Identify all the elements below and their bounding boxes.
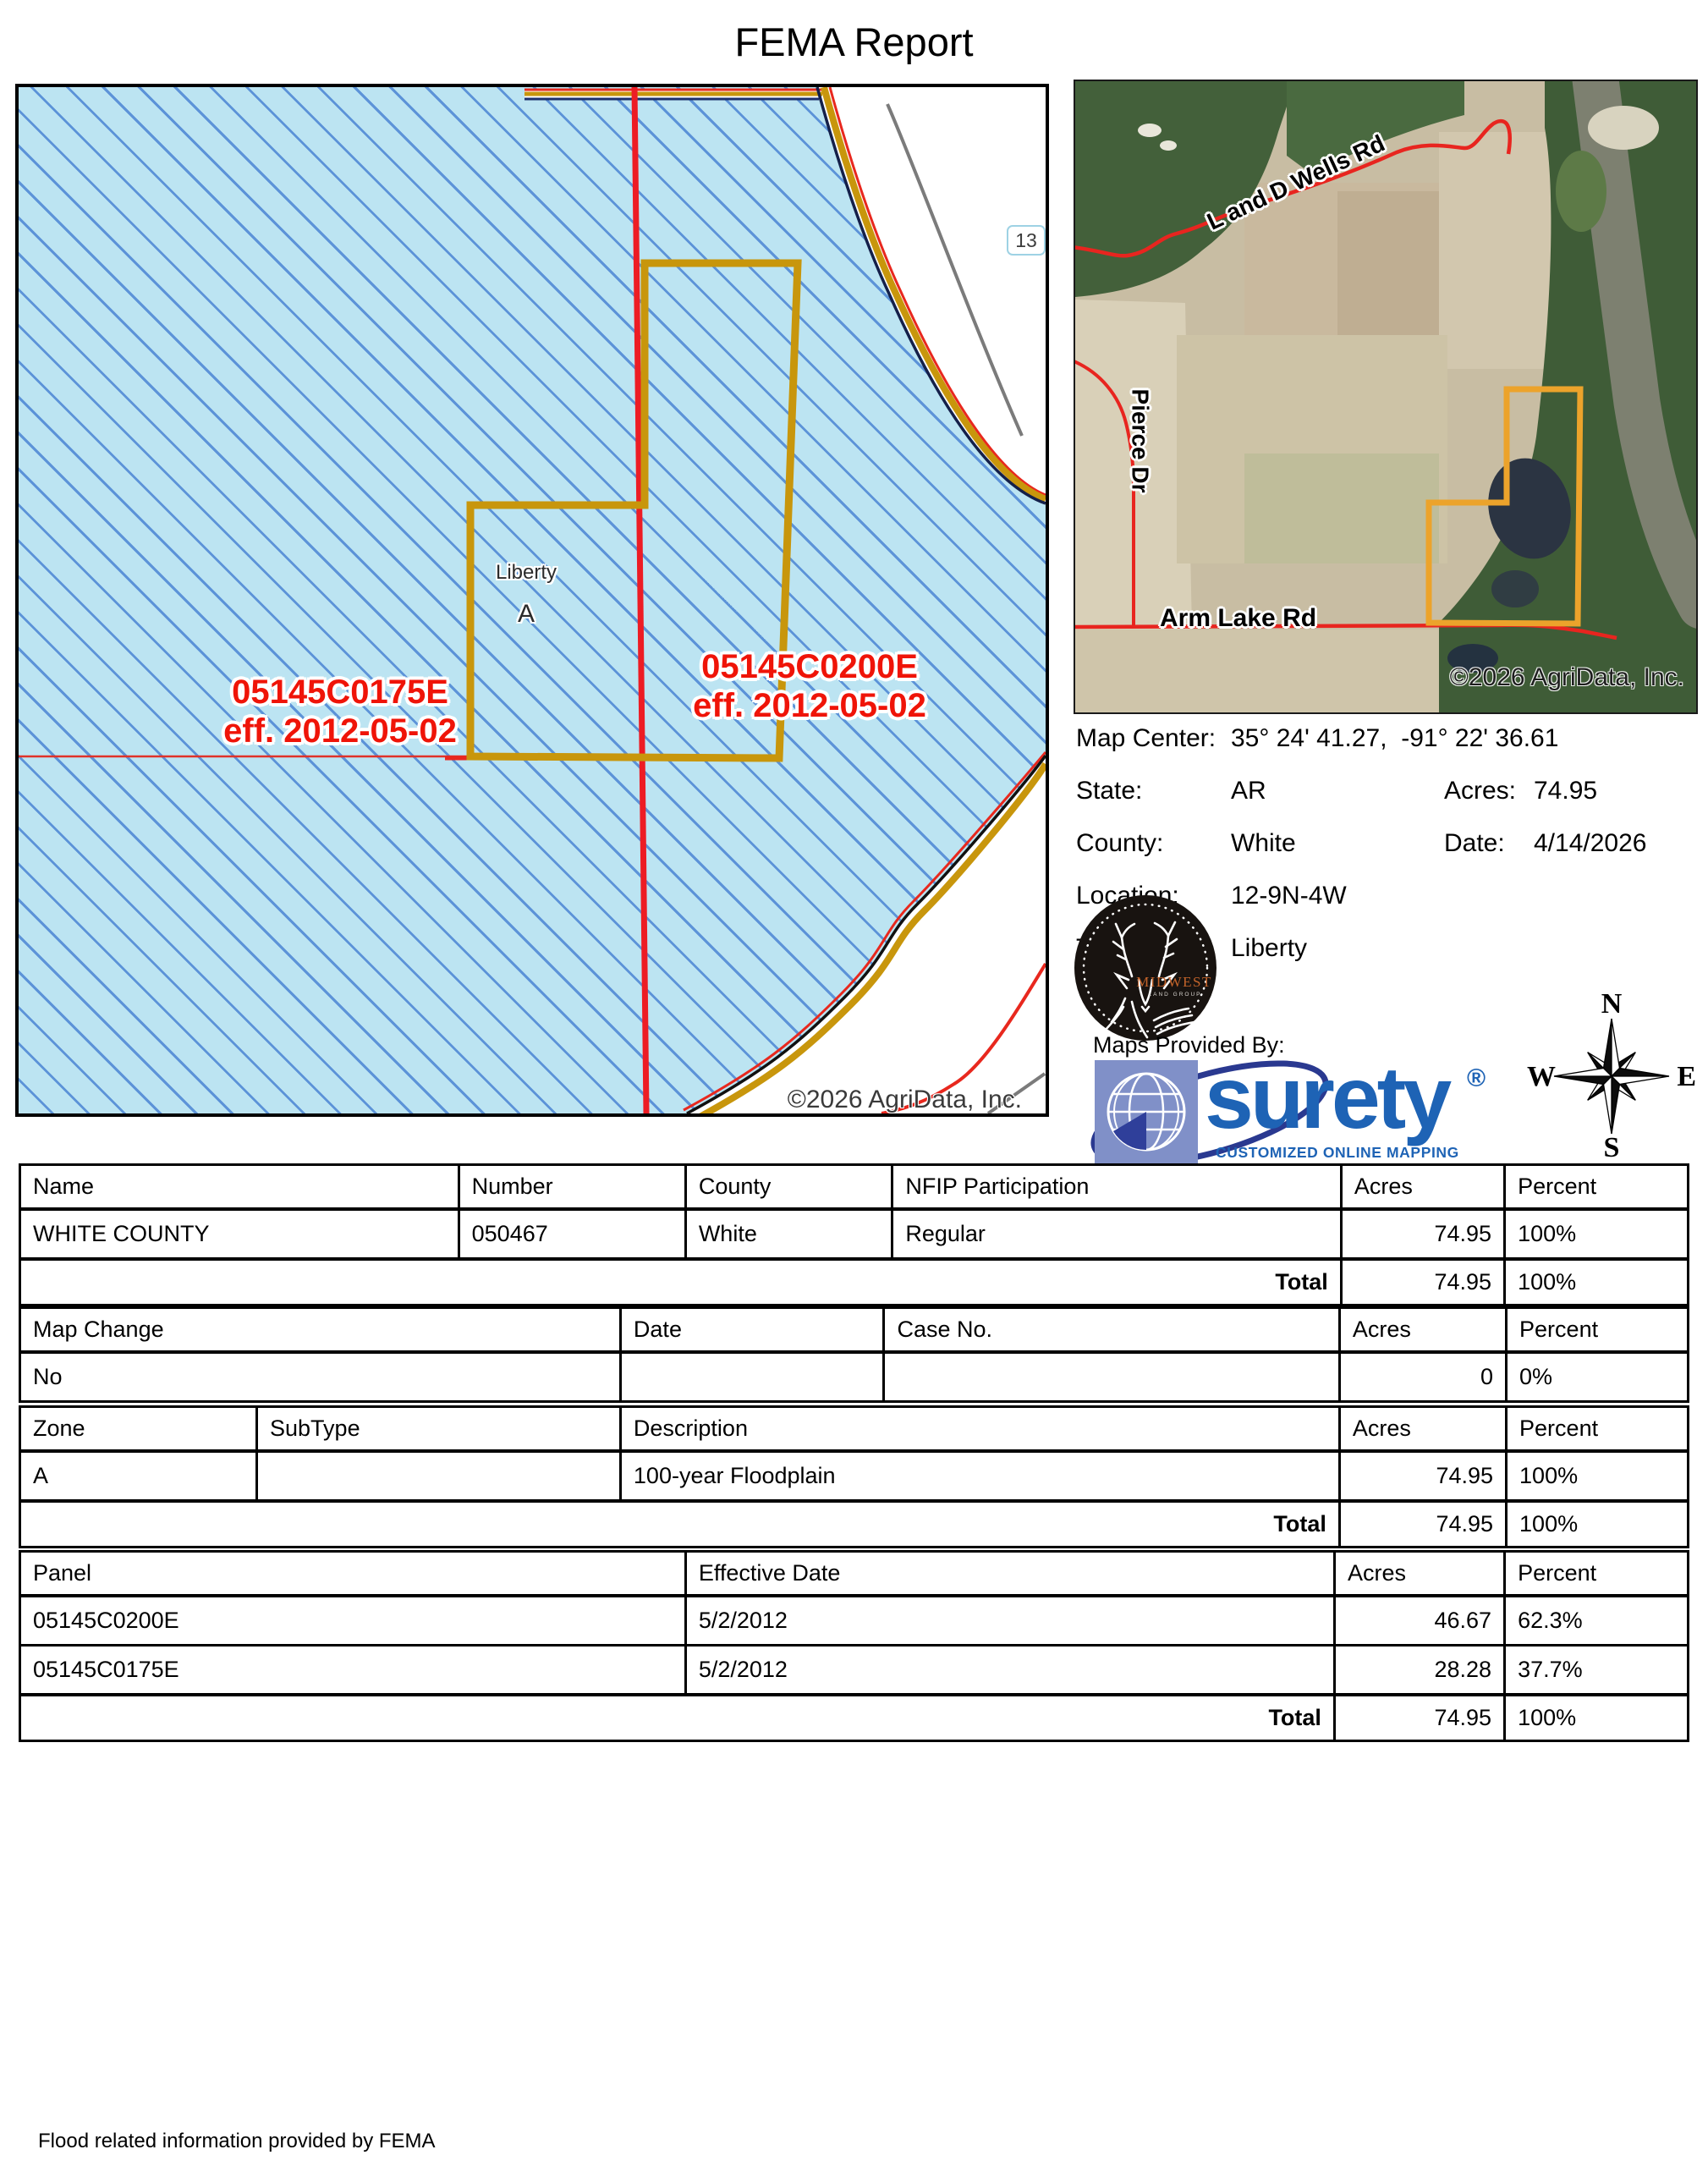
table-row: 05145C0200E 5/2/2012 46.67 62.3% [20,1596,1689,1646]
pond-2 [1491,570,1539,607]
fema-panel-label-right: 05145C0200E eff. 2012-05-02 [640,647,979,725]
cell-subtype [257,1451,621,1501]
col-effective-date: Effective Date [685,1552,1334,1597]
map-change-table: Map Change Date Case No. Acres Percent N… [19,1306,1689,1403]
total-row: Total 74.95 100% [20,1695,1689,1741]
col-name: Name [20,1165,459,1210]
aerial-photo-map: L and D Wells Rd Pierce Dr Arm Lake Rd ©… [1074,80,1698,714]
map-change-header: Map Change Date Case No. Acres Percent [20,1308,1689,1353]
globe-grid [1095,1060,1198,1163]
col-acres: Acres [1339,1308,1506,1353]
flood-zone-label: A [492,600,560,629]
footer-note: Flood related information provided by FE… [38,2130,436,2153]
col-subtype: SubType [257,1407,621,1452]
cell-acres: 28.28 [1334,1646,1504,1696]
zone-table: Zone SubType Description Acres Percent A… [19,1405,1689,1548]
surety-wordmark: surety [1205,1056,1448,1141]
non-floodplain-area-bottom [687,756,1046,1113]
field-3 [1439,132,1562,369]
panel-divider-red-line [634,87,646,1113]
total-percent: 100% [1505,1695,1689,1741]
cell-effective-date: 5/2/2012 [685,1646,1334,1696]
total-acres: 74.95 [1341,1259,1504,1306]
total-label: Total [20,1501,1340,1548]
location-value: 12-9N-4W [1231,882,1347,910]
logo-oval [1074,895,1216,1041]
road-label-arm-lake: Arm Lake Rd [1160,604,1380,633]
col-date: Date [620,1308,884,1353]
info-row-state: State: AR Acres: 74.95 [1076,777,1702,807]
township-map-label: Liberty [475,561,577,585]
col-percent: Percent [1505,1552,1689,1597]
compass-star-icon [1527,992,1696,1161]
county-table-header: Name Number County NFIP Participation Ac… [20,1165,1689,1210]
map-center-label: Map Center: [1076,724,1216,753]
total-row: Total 74.95 100% [20,1259,1689,1306]
township-value: Liberty [1231,934,1307,963]
col-acres: Acres [1339,1407,1506,1452]
county-label: County: [1076,829,1163,858]
date-label: Date: [1444,829,1505,858]
col-description: Description [620,1407,1339,1452]
date-value: 4/14/2026 [1534,829,1646,858]
cell-percent: 62.3% [1505,1596,1689,1646]
panel-table: Panel Effective Date Acres Percent 05145… [19,1550,1689,1742]
surety-tagline: CUSTOMIZED ONLINE MAPPING [1216,1144,1459,1162]
col-nfip: NFIP Participation [892,1165,1341,1210]
cell-acres: 0 [1339,1352,1506,1402]
total-acres: 74.95 [1334,1695,1504,1741]
cell-effective-date: 5/2/2012 [685,1596,1334,1646]
col-panel: Panel [20,1552,686,1597]
page-title: FEMA Report [0,19,1708,65]
midwest-sub-wordmark: LAND GROUP [1149,992,1202,998]
col-percent: Percent [1507,1407,1689,1452]
col-number: Number [459,1165,685,1210]
table-row: No 0 0% [20,1352,1689,1402]
cell-name: WHITE COUNTY [20,1209,459,1259]
clearing-1 [1138,124,1162,137]
state-value: AR [1231,777,1266,805]
fema-panel-left-id: 05145C0175E [154,673,526,712]
aerial-copyright: ©2026 AgriData, Inc. [1450,663,1684,692]
table-row: 05145C0175E 5/2/2012 28.28 37.7% [20,1646,1689,1696]
fema-panel-right-id: 05145C0200E [640,647,979,686]
flood-map-copyright: ©2026 AgriData, Inc. [788,1086,1022,1114]
cell-acres: 74.95 [1339,1451,1506,1501]
cell-acres: 46.67 [1334,1596,1504,1646]
col-case-no: Case No. [884,1308,1339,1353]
cell-nfip: Regular [892,1209,1341,1259]
cell-percent: 37.7% [1505,1646,1689,1696]
col-zone: Zone [20,1407,257,1452]
section-number: 13 [1015,229,1037,252]
section-number-badge: 13 [1007,225,1046,256]
col-county: County [685,1165,892,1210]
col-percent: Percent [1507,1308,1689,1353]
col-map-change: Map Change [20,1308,621,1353]
col-percent: Percent [1505,1165,1689,1210]
acres-label: Acres: [1444,777,1516,805]
midwest-wordmark: MIDWEST [1136,974,1212,990]
cell-panel: 05145C0175E [20,1646,686,1696]
cell-date [620,1352,884,1402]
cell-acres: 74.95 [1341,1209,1504,1259]
cell-panel: 05145C0200E [20,1596,686,1646]
cell-percent: 100% [1507,1451,1689,1501]
river-island [1556,151,1606,232]
clearing-2 [1160,140,1177,151]
fema-panel-right-eff: eff. 2012-05-02 [640,686,979,725]
fema-flood-map: 05145C0175E eff. 2012-05-02 05145C0200E … [15,84,1049,1117]
cell-zone: A [20,1451,257,1501]
zone-table-header: Zone SubType Description Acres Percent [20,1407,1689,1452]
sandbar [1588,106,1659,150]
total-acres: 74.95 [1339,1501,1506,1548]
field-green [1244,454,1439,563]
compass-rose: N W E S [1527,990,1696,1168]
non-floodplain-area-top [817,87,1046,503]
registered-mark-icon: ® [1467,1064,1486,1093]
map-center-value: 35° 24' 41.27, -91° 22' 36.61 [1231,724,1558,753]
cell-percent: 100% [1505,1209,1689,1259]
cell-number: 050467 [459,1209,685,1259]
cell-map-change: No [20,1352,621,1402]
cell-case-no [884,1352,1339,1402]
col-acres: Acres [1341,1165,1504,1210]
county-value: White [1231,829,1296,858]
acres-value: 74.95 [1534,777,1597,805]
cell-description: 100-year Floodplain [620,1451,1339,1501]
county-table: Name Number County NFIP Participation Ac… [19,1163,1689,1306]
total-label: Total [20,1259,1342,1306]
road-label-pierce: Pierce Dr [1120,371,1154,511]
fema-panel-left-eff: eff. 2012-05-02 [154,712,526,750]
total-percent: 100% [1507,1501,1689,1548]
total-percent: 100% [1505,1259,1689,1306]
cell-percent: 0% [1507,1352,1689,1402]
state-label: State: [1076,777,1142,805]
cell-county: White [685,1209,892,1259]
surety-globe-icon [1095,1060,1198,1163]
info-row-county: County: White Date: 4/14/2026 [1076,829,1702,860]
midwest-land-group-logo: MIDWEST LAND GROUP [1073,893,1218,1042]
info-row-map-center: Map Center: 35° 24' 41.27, -91° 22' 36.6… [1076,724,1702,755]
table-row: A 100-year Floodplain 74.95 100% [20,1451,1689,1501]
fema-panel-label-left: 05145C0175E eff. 2012-05-02 [154,673,526,750]
panel-table-header: Panel Effective Date Acres Percent [20,1552,1689,1597]
total-row: Total 74.95 100% [20,1501,1689,1548]
table-row: WHITE COUNTY 050467 White Regular 74.95 … [20,1209,1689,1259]
col-acres: Acres [1334,1552,1504,1597]
total-label: Total [20,1695,1335,1741]
